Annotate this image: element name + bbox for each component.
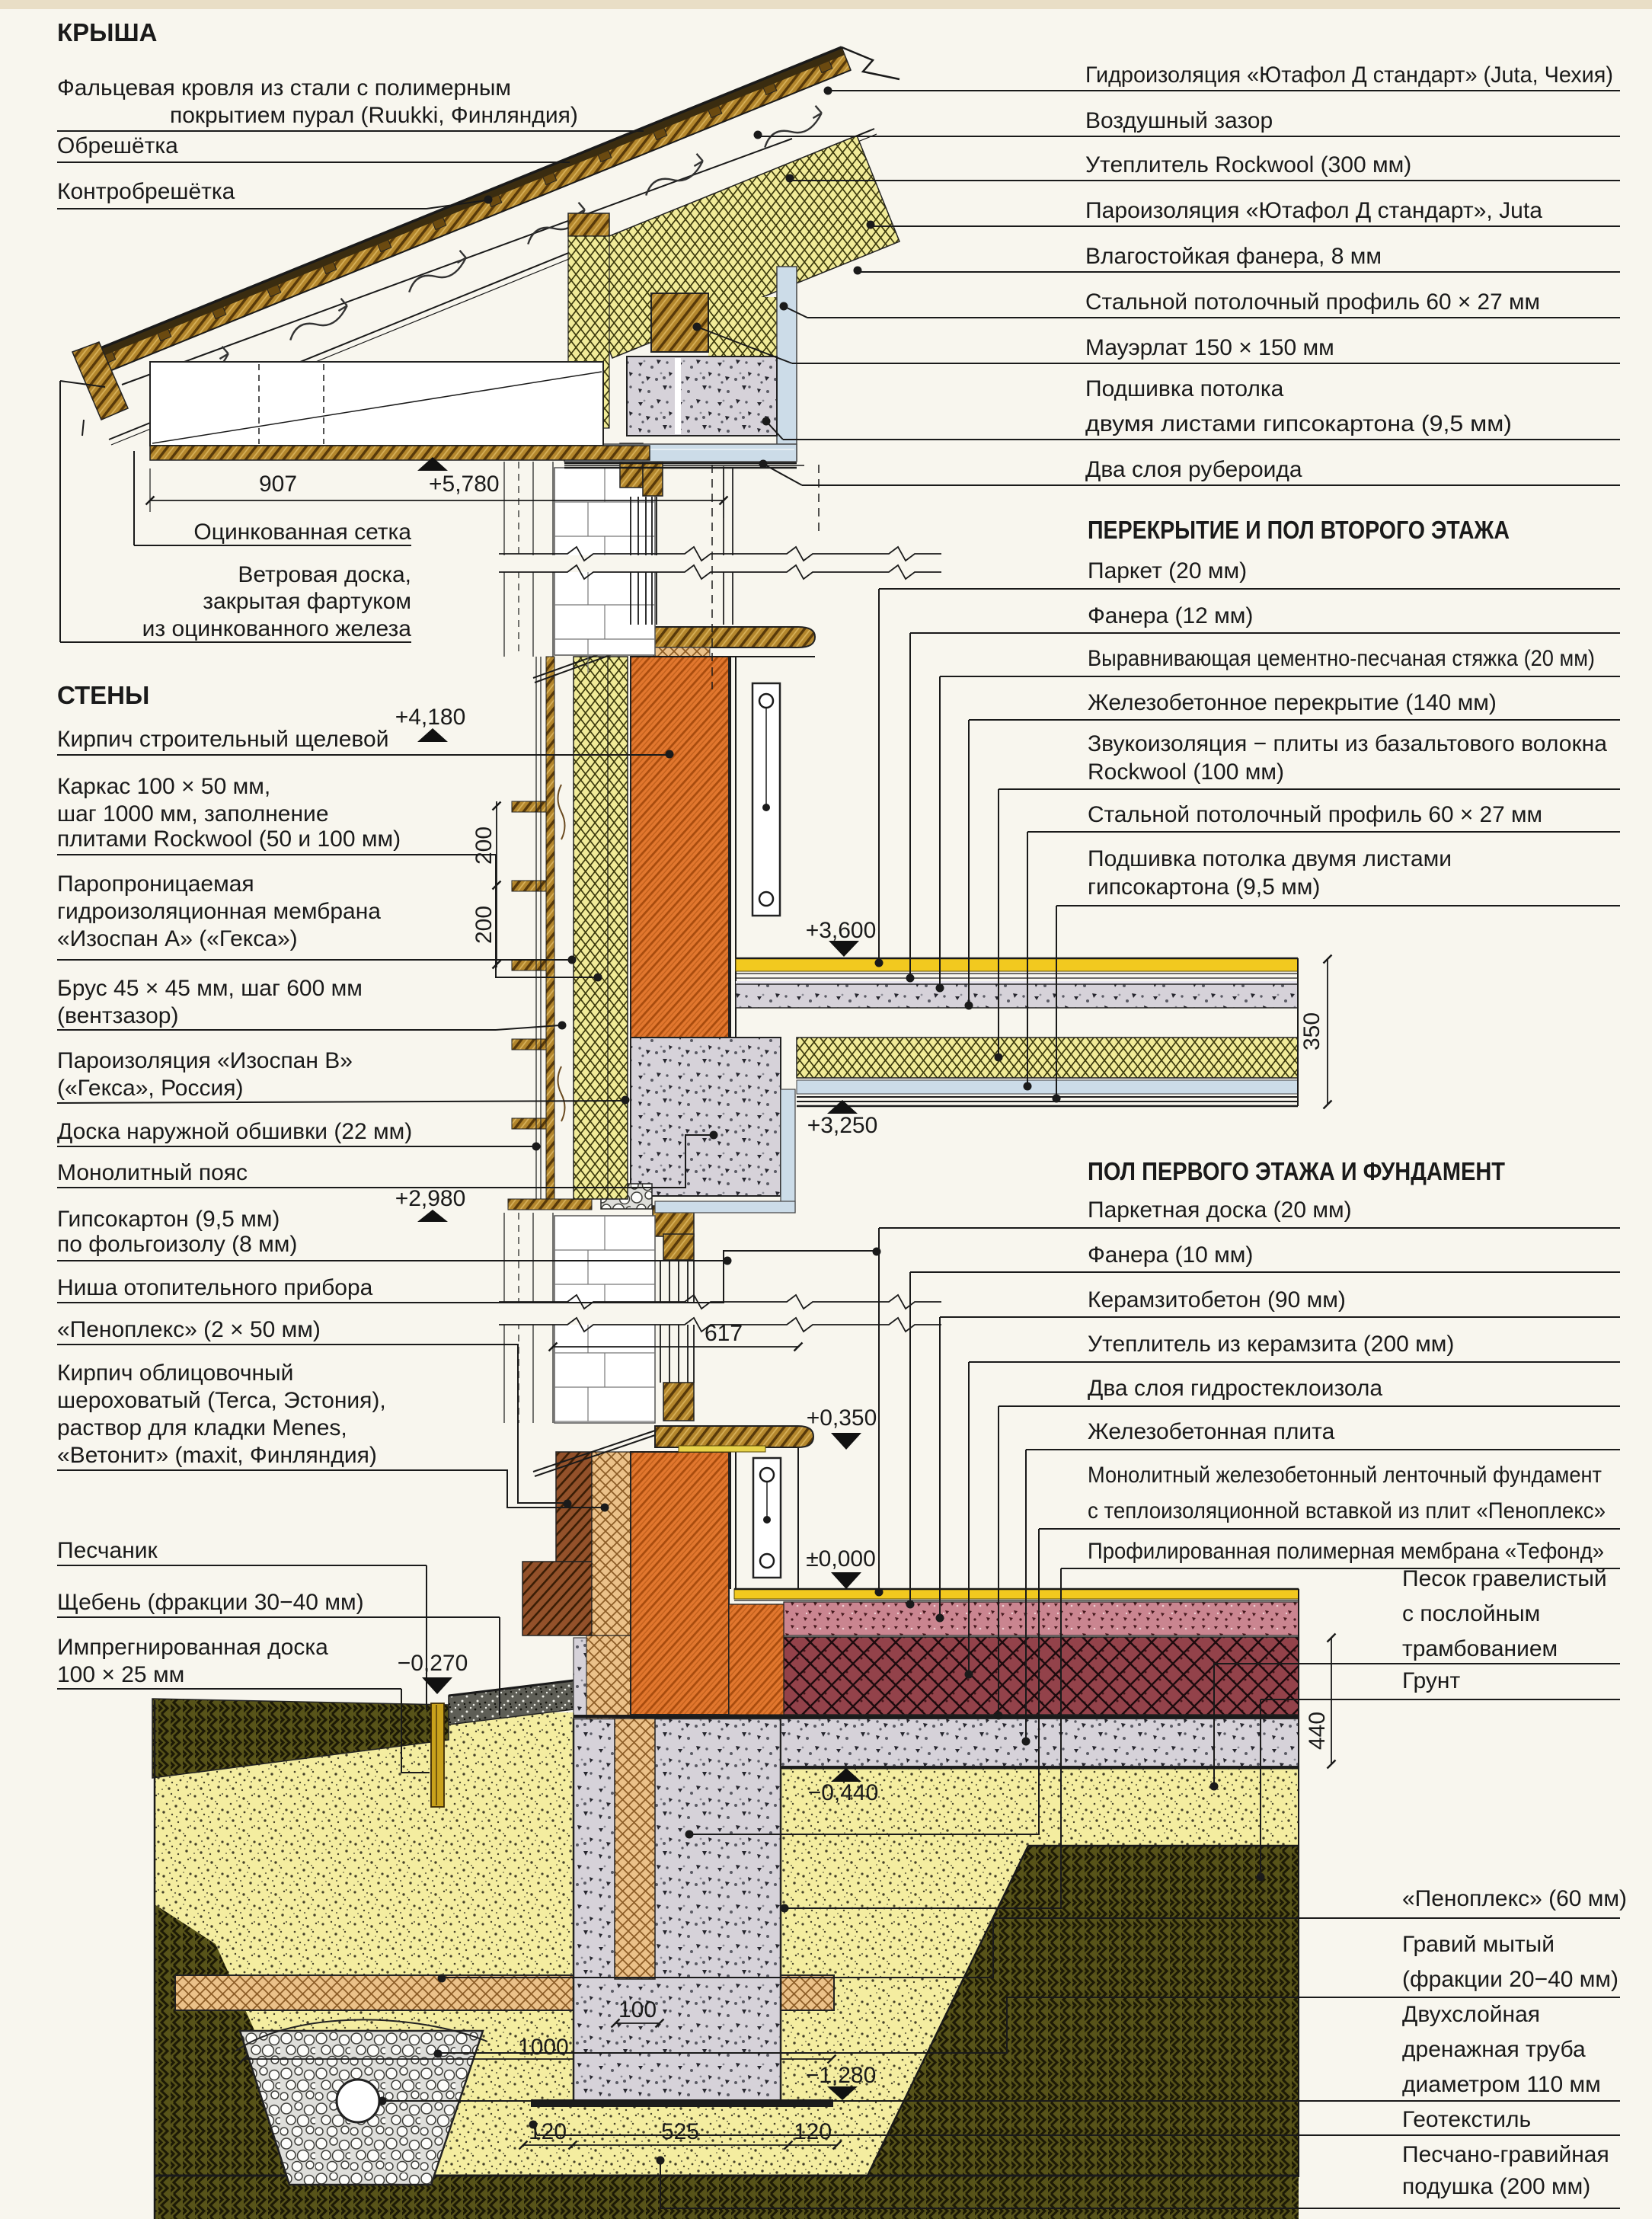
svg-text:Пароизоляция «Ютафол Д стандар: Пароизоляция «Ютафол Д стандарт», Juta [1085, 198, 1542, 223]
svg-text:Влагостойкая фанера, 8 мм: Влагостойкая фанера, 8 мм [1085, 244, 1382, 269]
svg-text:525: 525 [661, 2119, 699, 2144]
svg-text:Грунт: Грунт [1402, 1668, 1460, 1693]
svg-text:Геотекстиль: Геотекстиль [1402, 2107, 1531, 2132]
svg-text:покрытием пурал (Ruukki, Финля: покрытием пурал (Ruukki, Финляндия) [170, 103, 578, 128]
svg-text:Монолитный железобетонный лент: Монолитный железобетонный ленточный фунд… [1088, 1463, 1602, 1488]
svg-text:подушка (200 мм): подушка (200 мм) [1402, 2174, 1590, 2199]
svg-text:Фанера (10 мм): Фанера (10 мм) [1088, 1242, 1253, 1268]
svg-text:Профилированная полимерная мем: Профилированная полимерная мембрана «Теф… [1088, 1539, 1604, 1564]
svg-text:Гравий мытый: Гравий мытый [1402, 1932, 1555, 1957]
svg-text:Фанера (12 мм): Фанера (12 мм) [1088, 603, 1253, 628]
svg-text:Паркетная доска (20 мм): Паркетная доска (20 мм) [1088, 1197, 1352, 1223]
svg-text:350: 350 [1299, 1012, 1324, 1050]
svg-text:Кирпич строительный щелевой: Кирпич строительный щелевой [57, 727, 388, 752]
svg-text:гипсокартона (9,5 мм): гипсокартона (9,5 мм) [1088, 874, 1320, 900]
svg-text:Паркет (20 мм): Паркет (20 мм) [1088, 558, 1247, 584]
svg-text:ПЕРЕКРЫТИЕ И ПОЛ ВТОРОГО ЭТАЖА: ПЕРЕКРЫТИЕ И ПОЛ ВТОРОГО ЭТАЖА [1088, 516, 1510, 544]
svg-text:−1,280: −1,280 [806, 2063, 877, 2088]
svg-text:СТЕНЫ: СТЕНЫ [57, 681, 149, 709]
svg-text:Стальной потолочный профиль 60: Стальной потолочный профиль 60 × 27 мм [1088, 802, 1542, 827]
svg-text:Утеплитель из керамзита (200 м: Утеплитель из керамзита (200 мм) [1088, 1332, 1454, 1357]
svg-text:Песок гравелистый: Песок гравелистый [1402, 1566, 1607, 1591]
svg-text:Подшивка потолка: Подшивка потолка [1085, 376, 1284, 401]
svg-text:Пароизоляция «Изоспан В»: Пароизоляция «Изоспан В» [57, 1048, 353, 1073]
svg-text:Песчано-гравийная: Песчано-гравийная [1402, 2142, 1609, 2167]
svg-text:+3,250: +3,250 [807, 1113, 878, 1138]
svg-text:200: 200 [471, 827, 497, 865]
svg-text:Оцинкованная сетка: Оцинкованная сетка [193, 520, 411, 545]
svg-text:«Ветонит» (maxit, Финляндия): «Ветонит» (maxit, Финляндия) [57, 1443, 377, 1468]
svg-text:Мауэрлат 150 × 150 мм: Мауэрлат 150 × 150 мм [1085, 335, 1334, 360]
svg-text:КРЫША: КРЫША [57, 18, 157, 46]
svg-text:−0,440: −0,440 [808, 1780, 879, 1805]
svg-text:(«Гекса», Россия): («Гекса», Россия) [57, 1076, 243, 1101]
svg-text:Брус 45 × 45 мм, шаг 600 мм: Брус 45 × 45 мм, шаг 600 мм [57, 976, 363, 1001]
svg-text:100: 100 [618, 1997, 657, 2022]
svg-text:Кирпич облицовочный: Кирпич облицовочный [57, 1360, 293, 1386]
svg-text:907: 907 [259, 472, 297, 497]
svg-text:Звукоизоляция − плиты из базал: Звукоизоляция − плиты из базальтового во… [1088, 731, 1607, 756]
svg-text:с послойным: с послойным [1402, 1601, 1540, 1626]
svg-text:плитами Rockwool (50 и 100 мм): плитами Rockwool (50 и 100 мм) [57, 827, 401, 852]
svg-text:+5,780: +5,780 [429, 472, 500, 497]
svg-text:диаметром 110 мм: диаметром 110 мм [1402, 2072, 1601, 2097]
svg-text:100 × 25 мм: 100 × 25 мм [57, 1662, 184, 1687]
svg-text:Керамзитобетон (90 мм): Керамзитобетон (90 мм) [1088, 1287, 1346, 1313]
svg-text:Утеплитель Rockwool (300 мм): Утеплитель Rockwool (300 мм) [1085, 152, 1411, 177]
svg-text:Два слоя рубероида: Два слоя рубероида [1085, 457, 1302, 482]
svg-text:Обрешётка: Обрешётка [57, 133, 178, 158]
svg-text:Паропроницаемая: Паропроницаемая [57, 871, 254, 897]
svg-text:Ниша отопительного прибора: Ниша отопительного прибора [57, 1275, 373, 1300]
svg-text:Импрегнированная доска: Импрегнированная доска [57, 1635, 328, 1660]
svg-text:±0,000: ±0,000 [806, 1546, 876, 1572]
svg-text:Гипсокартон (9,5 мм): Гипсокартон (9,5 мм) [57, 1207, 280, 1232]
svg-text:Гидроизоляция «Ютафол Д станда: Гидроизоляция «Ютафол Д стандарт» (Juta,… [1085, 62, 1613, 88]
svg-text:гидроизоляционная мембрана: гидроизоляционная мембрана [57, 899, 381, 924]
svg-text:200: 200 [471, 906, 497, 944]
svg-text:Воздушный зазор: Воздушный зазор [1085, 108, 1273, 133]
svg-text:Контробрешётка: Контробрешётка [57, 179, 235, 204]
svg-text:двумя листами гипсокартона (9,: двумя листами гипсокартона (9,5 мм) [1085, 411, 1512, 436]
svg-text:617: 617 [705, 1321, 743, 1346]
svg-text:Подшивка потолка двумя листами: Подшивка потолка двумя листами [1088, 846, 1452, 871]
svg-text:+0,350: +0,350 [807, 1405, 877, 1431]
svg-text:(вентзазор): (вентзазор) [57, 1003, 178, 1028]
svg-text:Каркас 100 × 50 мм,: Каркас 100 × 50 мм, [57, 774, 270, 799]
svg-text:раствор для кладки Menes,: раствор для кладки Menes, [57, 1415, 347, 1440]
svg-text:Стальной потолочный профиль 60: Стальной потолочный профиль 60 × 27 мм [1085, 289, 1540, 315]
svg-text:Два слоя гидростеклоизола: Два слоя гидростеклоизола [1088, 1376, 1382, 1401]
svg-text:закрытая фартуком: закрытая фартуком [203, 589, 411, 614]
svg-text:Доска наружной обшивки (22 мм): Доска наружной обшивки (22 мм) [57, 1119, 412, 1144]
svg-text:Выравнивающая цементно-песчана: Выравнивающая цементно-песчаная стяжка (… [1088, 646, 1595, 671]
svg-text:шаг 1000 мм, заполнение: шаг 1000 мм, заполнение [57, 801, 329, 827]
svg-text:Щебень (фракции 30−40 мм): Щебень (фракции 30−40 мм) [57, 1590, 364, 1615]
svg-text:−0,270: −0,270 [398, 1651, 468, 1676]
svg-text:Песчаник: Песчаник [57, 1538, 158, 1563]
svg-text:по фольгоизолу (8 мм): по фольгоизолу (8 мм) [57, 1232, 297, 1257]
svg-text:Железобетонная плита: Железобетонная плита [1088, 1419, 1335, 1444]
svg-text:Двухслойная: Двухслойная [1402, 2002, 1540, 2027]
svg-text:трамбованием: трамбованием [1402, 1636, 1558, 1661]
svg-text:(фракции 20−40 мм): (фракции 20−40 мм) [1402, 1967, 1618, 1992]
svg-text:+3,600: +3,600 [806, 918, 877, 943]
svg-text:Монолитный пояс: Монолитный пояс [57, 1160, 248, 1185]
svg-text:из оцинкованного железа: из оцинкованного железа [142, 616, 412, 641]
svg-text:ПОЛ ПЕРВОГО ЭТАЖА И ФУНДАМЕНТ: ПОЛ ПЕРВОГО ЭТАЖА И ФУНДАМЕНТ [1088, 1157, 1505, 1185]
svg-text:«Пеноплекс» (2 × 50 мм): «Пеноплекс» (2 × 50 мм) [57, 1317, 321, 1342]
svg-text:шероховатый (Terca, Эстония),: шероховатый (Terca, Эстония), [57, 1388, 386, 1413]
svg-text:+4,180: +4,180 [395, 705, 466, 730]
svg-text:440: 440 [1305, 1712, 1330, 1750]
svg-text:Железобетонное перекрытие (140: Железобетонное перекрытие (140 мм) [1088, 690, 1497, 715]
svg-text:«Изоспан А» («Гекса»): «Изоспан А» («Гекса») [57, 926, 298, 951]
svg-text:дренажная труба: дренажная труба [1402, 2037, 1586, 2062]
svg-text:Rockwool (100 мм): Rockwool (100 мм) [1088, 759, 1284, 785]
svg-text:120: 120 [794, 2119, 832, 2144]
svg-text:с теплоизоляционной вставкой и: с теплоизоляционной вставкой из плит «Пе… [1088, 1498, 1606, 1524]
svg-text:Фальцевая кровля из стали с по: Фальцевая кровля из стали с полимерным [57, 75, 511, 101]
svg-text:+2,980: +2,980 [395, 1186, 466, 1211]
svg-text:Ветровая доска,: Ветровая доска, [238, 562, 411, 587]
svg-text:«Пеноплекс» (60 мм): «Пеноплекс» (60 мм) [1402, 1886, 1627, 1911]
svg-text:1000: 1000 [518, 2035, 569, 2060]
